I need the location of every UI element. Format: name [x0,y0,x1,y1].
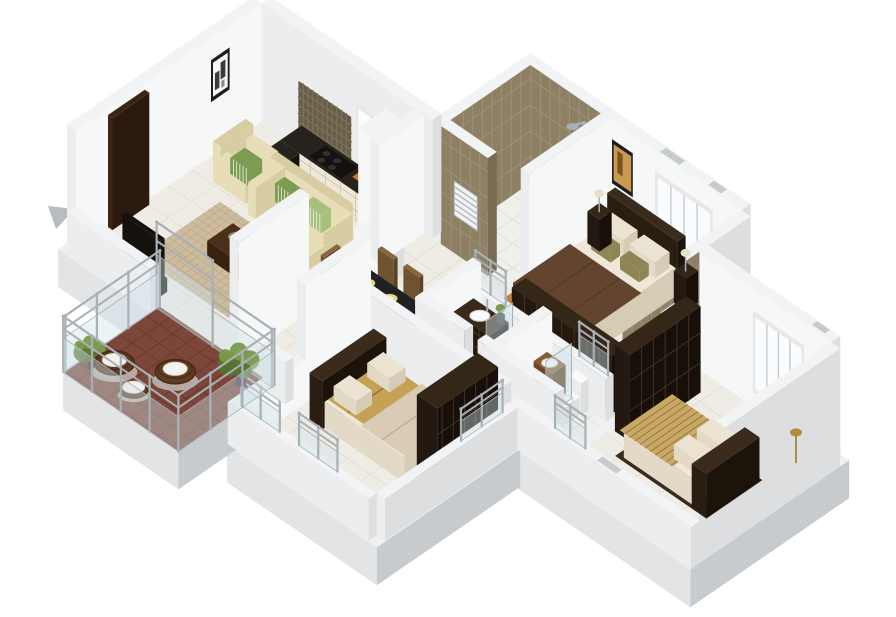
hob-burner-2 [333,158,341,163]
hob-burner-3 [317,158,325,163]
shower-head [566,123,578,130]
bedroom3-gold-lamp [790,428,802,436]
lamp-right-shade [681,249,691,257]
lamp-left-shade [594,190,604,198]
vanity-basin [470,310,490,321]
living-picture-blob1 [221,59,226,79]
hob-burner-4 [328,165,336,170]
floor-plan-3d-render [0,0,896,617]
floor-plan-stage [0,0,896,617]
entry-door-open-leaf [108,90,149,230]
living-picture-blob2 [215,70,220,90]
hob-burner-1 [323,151,331,156]
master-picture-art-detail [617,151,622,177]
